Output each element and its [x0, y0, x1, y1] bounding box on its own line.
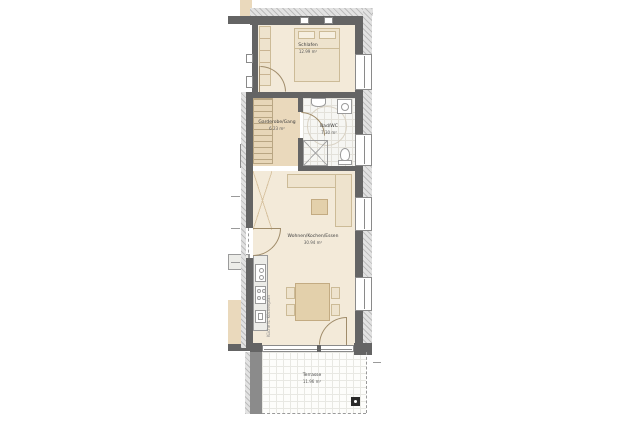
door-leaf-entry	[253, 228, 281, 229]
wall-top-notch	[324, 17, 333, 24]
burner	[257, 296, 261, 300]
door-leaf-bedroom	[259, 66, 260, 92]
room-label-garderobe: Garderobe/Gang 6.23 m²	[247, 120, 307, 131]
room-area: 12.99 m²	[278, 49, 338, 54]
wall-left-upper	[246, 92, 253, 228]
terrace-edge-right	[366, 352, 368, 413]
wall-niche	[246, 76, 253, 88]
door-leaf-terrace	[346, 317, 347, 345]
dining-chair	[286, 287, 295, 299]
burner	[257, 289, 261, 293]
wall-niche	[246, 54, 253, 63]
dining-table	[295, 283, 330, 321]
floor-plan-canvas: Küche lt. Küchenplan Schlafen 12.99 m² G…	[0, 0, 640, 427]
room-area: 30.94 m²	[283, 240, 343, 245]
terrace-door-jamb	[317, 345, 321, 352]
room-label-terrasse: Terrasse 11.96 m²	[282, 373, 342, 384]
room-area: 11.96 m²	[282, 379, 342, 384]
terrace-glazing	[262, 345, 354, 352]
terrace-edge-bottom	[262, 413, 366, 415]
window-glass-line	[364, 136, 365, 164]
drain-dot	[354, 400, 357, 403]
room-area: 6.23 m²	[247, 126, 307, 131]
entry-opening-dashed-line	[248, 228, 250, 258]
cooktop	[255, 286, 266, 304]
wall-corner-bottom-right	[354, 343, 372, 355]
window-glass-line	[264, 349, 352, 350]
shower	[303, 140, 328, 166]
washing-machine-door	[341, 103, 349, 111]
terrace-wall-left	[250, 352, 262, 414]
burner	[262, 289, 266, 293]
bed-pillow	[319, 31, 336, 39]
room-label-schlafen: Schlafen 12.99 m²	[278, 43, 338, 54]
sink-basin	[259, 275, 264, 280]
washing-machine	[337, 99, 352, 114]
wall-top-notch	[300, 17, 309, 24]
oven	[255, 310, 266, 323]
oven-door	[258, 313, 263, 320]
wall-bath-bottom	[298, 166, 363, 171]
room-label-wohnen: Wohnen/Kochen/Essen 30.94 m²	[283, 234, 343, 245]
dining-chair	[286, 304, 295, 316]
window-living-upper	[355, 197, 372, 231]
window-living-lower	[355, 277, 372, 311]
kitchen-sink	[255, 264, 266, 282]
dimension-tick	[373, 362, 381, 363]
wall-top-outer	[250, 8, 373, 16]
terrace-wall-left-outer	[245, 352, 250, 414]
toilet-bowl	[340, 148, 350, 161]
window-glass-line	[364, 199, 365, 229]
wall-left-lower	[246, 258, 253, 348]
coffee-table	[311, 199, 328, 215]
dimension-tick	[231, 228, 240, 229]
kitchen-note: Küche lt. Küchenplan	[266, 295, 271, 337]
window-glass-line	[364, 279, 365, 309]
sink-basin	[259, 268, 264, 273]
wall-bath-left-top	[298, 98, 303, 112]
room-label-bad: Bad/WC 7.30 m²	[308, 124, 350, 135]
terrace-drain-icon	[351, 397, 360, 406]
sofa-chaise	[335, 174, 352, 227]
bed-pillow	[298, 31, 315, 39]
window-bedroom	[355, 54, 372, 90]
dining-chair	[331, 287, 340, 299]
dimension-tick	[231, 262, 240, 263]
hall-strip	[253, 171, 272, 230]
dimension-tick	[231, 196, 240, 197]
room-area: 7.30 m²	[308, 130, 350, 135]
dining-chair	[331, 304, 340, 316]
sink	[311, 98, 326, 107]
window-glass-line	[364, 56, 365, 88]
window-bath	[355, 134, 372, 166]
room-name: Wohnen/Kochen/Essen	[283, 234, 343, 240]
